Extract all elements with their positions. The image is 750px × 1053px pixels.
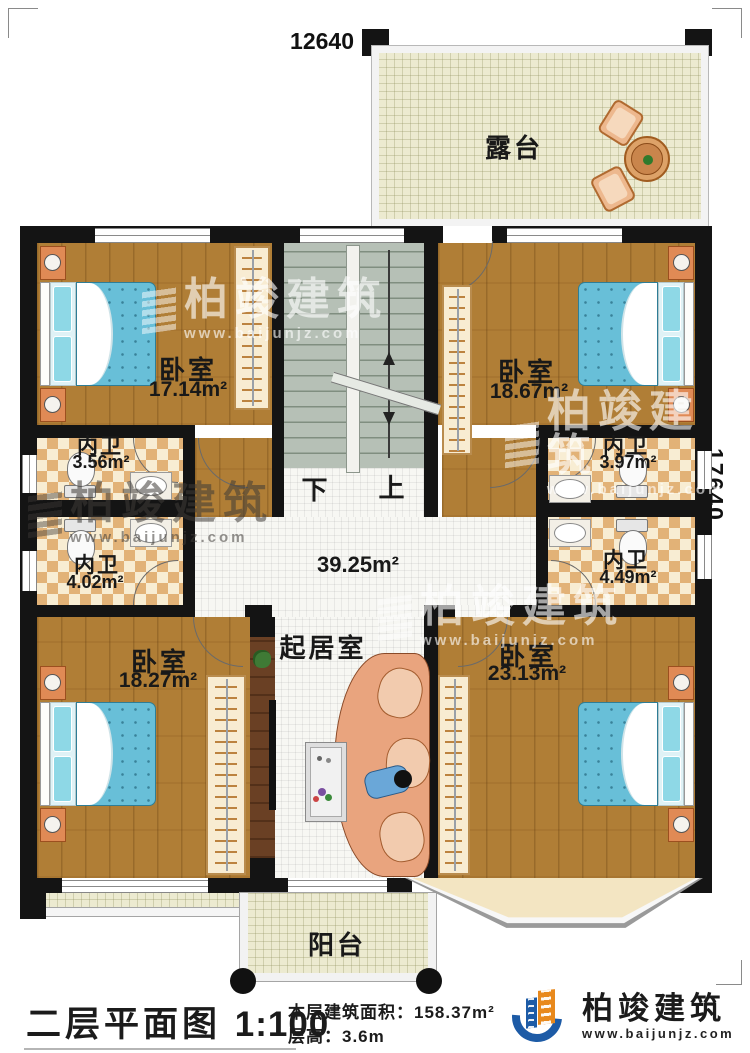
floor-area-label: 本层建筑面积： <box>288 1003 414 1022</box>
wall-bedroom-br-top <box>510 605 696 617</box>
sink-icon <box>549 475 591 503</box>
area-bedroom-br: 23.13m² <box>488 662 566 686</box>
wall-bath-inner-left <box>183 425 195 617</box>
door-gap <box>455 605 510 617</box>
area-bath-bl: 4.02m² <box>66 572 123 593</box>
walkway-railing <box>42 907 242 917</box>
hall-floor <box>272 605 424 617</box>
title-underline <box>24 1048 296 1050</box>
corner-tick <box>741 960 742 985</box>
nightstand-icon <box>40 808 66 842</box>
floor-area-value: 158.37m² <box>414 1003 495 1022</box>
bed-bedroom-br <box>578 666 694 842</box>
stair-arrow-icon <box>383 412 395 425</box>
label-living: 起居室 <box>279 628 366 665</box>
brand-logo: 柏竣建筑 www.baijunjz.com <box>512 988 734 1046</box>
wall-stair-right <box>424 226 438 517</box>
plant-icon <box>253 650 271 668</box>
nightstand-icon <box>40 666 66 700</box>
flowers-icon <box>325 794 332 801</box>
wardrobe-bedroom-br <box>438 675 470 875</box>
sink-icon <box>549 519 591 547</box>
floor-height-value: 3.6m <box>342 1027 385 1046</box>
brand-logo-icon <box>512 988 572 1046</box>
balcony-column <box>230 968 256 994</box>
window-bedroom-tl <box>95 228 210 243</box>
window-bedroom-tr <box>507 228 622 243</box>
window-bath-tl <box>22 455 37 493</box>
corner-tick <box>8 8 38 9</box>
sink-icon <box>130 472 172 500</box>
table-icon <box>624 136 670 182</box>
label-terrace: 露台 <box>485 128 543 165</box>
dimension-top: 12640 <box>288 28 354 55</box>
window-stairwell <box>300 228 404 243</box>
wardrobe-bedroom-tl <box>234 246 270 410</box>
floor-plan: 12640 17640 露台 <box>0 0 750 1053</box>
sink-icon <box>130 519 172 547</box>
porch-pillar <box>20 893 46 919</box>
corner-tick <box>741 8 742 38</box>
wall-tv-stub <box>250 617 275 637</box>
area-bath-tr: 3.97m² <box>599 452 656 473</box>
nightstand-icon <box>668 388 694 422</box>
wall-bedroom-bl-top <box>245 605 272 617</box>
corner-tick <box>8 8 9 38</box>
window-bath-br <box>697 535 712 579</box>
wall-stair-left <box>272 226 284 517</box>
label-balcony: 阳台 <box>308 925 366 962</box>
wardrobe-bedroom-tr <box>442 285 472 455</box>
area-bedroom-tl: 17.14m² <box>149 378 227 402</box>
coffee-table <box>305 742 347 822</box>
window-bath-tr <box>697 451 712 489</box>
label-stairs-up: 上 <box>378 468 407 505</box>
flowers-icon <box>313 796 319 802</box>
brand-website: www.baijunjz.com <box>582 1026 734 1041</box>
wall-bedroom-bl-top <box>20 605 195 617</box>
wall-bottom <box>208 878 288 893</box>
area-bedroom-tr: 18.67m² <box>490 380 568 404</box>
wardrobe-bedroom-bl <box>206 675 246 875</box>
table-dot <box>317 756 322 761</box>
brand-name: 柏竣建筑 <box>582 993 734 1026</box>
wall-bath-inner-right <box>536 438 548 617</box>
wall-bottom <box>20 878 62 893</box>
corner-tick <box>712 8 742 9</box>
nightstand-icon <box>668 808 694 842</box>
area-hall: 39.25m² <box>317 552 399 578</box>
area-bath-br: 4.49m² <box>599 567 656 588</box>
stair-arrow-icon <box>383 352 395 365</box>
nightstand-icon <box>668 246 694 280</box>
balcony-column <box>416 968 442 994</box>
nightstand-icon <box>40 388 66 422</box>
bed-bedroom-tr <box>578 246 694 422</box>
balcony-door <box>288 880 387 893</box>
nightstand-icon <box>668 666 694 700</box>
wall-bedroom-br-top <box>424 605 455 617</box>
window-bath-bl <box>22 551 37 591</box>
area-bath-tl: 3.56m² <box>72 452 129 473</box>
window-bedroom-bl <box>62 880 208 893</box>
corner-tick <box>716 984 742 985</box>
bed-bedroom-tl <box>40 246 156 422</box>
label-stairs-down: 下 <box>301 470 330 507</box>
floor-height-label: 层高： <box>288 1027 342 1046</box>
nightstand-icon <box>40 246 66 280</box>
wall-tv-stub <box>250 858 275 878</box>
tv-icon <box>269 700 276 810</box>
wall-bottom <box>387 878 412 893</box>
plan-title-text: 二层平面图 <box>26 1005 221 1044</box>
wall-bath-divider-left <box>36 500 183 517</box>
floor-area-line: 本层建筑面积：158.37m² <box>288 998 495 1023</box>
area-bedroom-bl: 18.27m² <box>119 669 197 693</box>
stair-stringer <box>346 245 360 473</box>
floor-height-line: 层高：3.6m <box>288 1022 385 1047</box>
table-dot <box>326 758 331 763</box>
person-head <box>394 770 412 788</box>
door-gap <box>195 605 245 617</box>
